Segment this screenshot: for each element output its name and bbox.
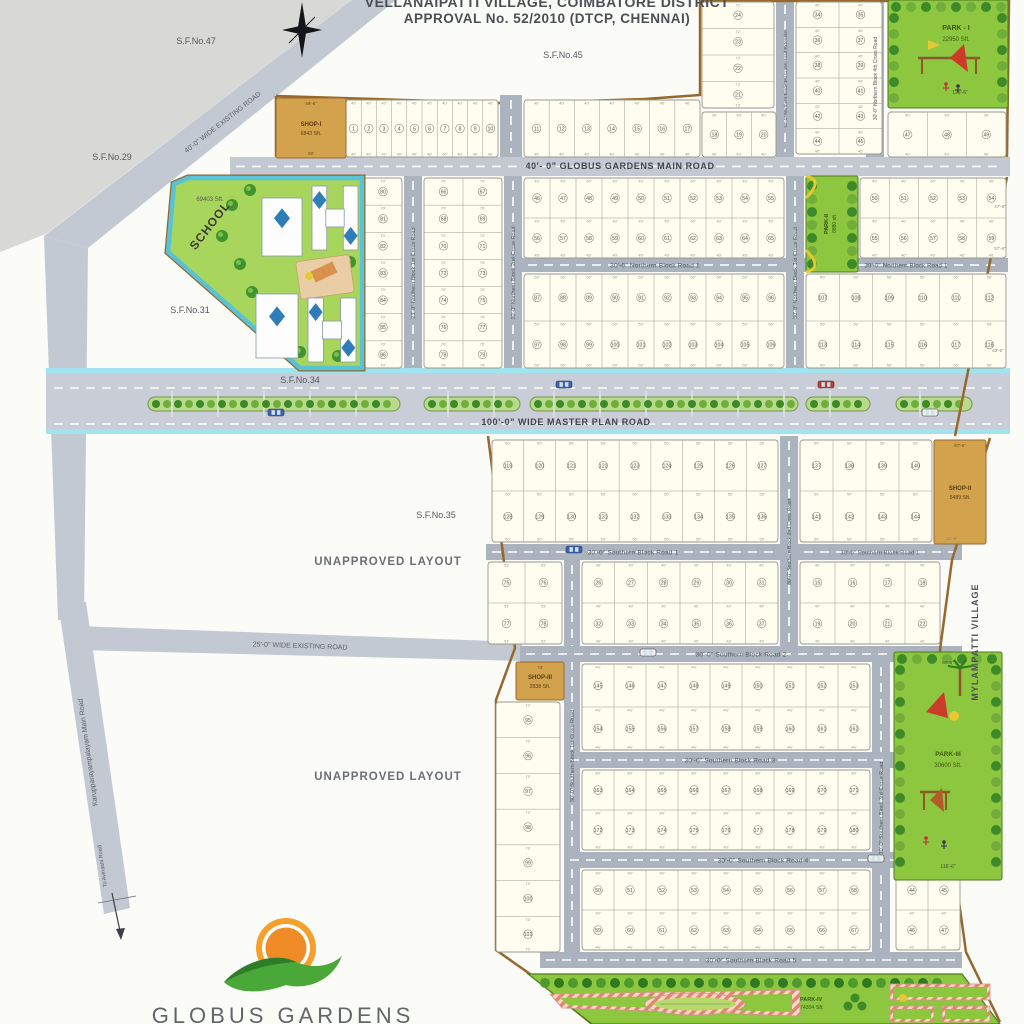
plot-dim: 40': [787, 911, 792, 916]
plot-dim: 40': [612, 179, 617, 184]
plot-number: 14: [609, 126, 615, 132]
plot-number: 21: [885, 621, 891, 627]
plot-dim: 40': [412, 101, 417, 106]
road-label-master-plan: 100'-0" WIDE MASTER PLAN ROAD: [481, 417, 650, 427]
plot-dim: 53': [541, 638, 546, 643]
plot-number: 133: [662, 514, 671, 520]
plot-number: 98: [560, 342, 566, 348]
plot-block: 8750'8850'8950'9050'9150'9250'9350'9450'…: [524, 274, 784, 368]
plot-dim: 50': [690, 362, 695, 367]
plot-number: 42: [815, 114, 821, 120]
plot-number: 144: [911, 514, 920, 520]
hedge: [722, 978, 732, 988]
plot-dim: 40': [815, 53, 820, 58]
plot-number: 75: [504, 580, 510, 586]
plot-number: 27: [628, 580, 634, 586]
road-label-northern-block-2nd-cross-road: 30'-0" Northern Block 2nd Cross Road: [511, 226, 517, 319]
shop-shop-ii: 87'-6"SHOP-II5489 Sft.: [934, 440, 986, 544]
plot-number: 137: [812, 463, 821, 469]
plot-dim: 40': [628, 638, 633, 643]
plot-dim: 40': [685, 101, 690, 106]
plot-number: 58: [586, 236, 592, 242]
road-label-northern-block-3rd-cross-road-extension: 30'-0" Northern Block 3rd Cross Road Ext…: [783, 29, 788, 128]
plot-dim: 40': [768, 252, 773, 257]
plot-number: 40: [815, 89, 821, 95]
plot-number: 65: [768, 236, 774, 242]
unapproved-layout-label: UNAPPROVED LAYOUT: [314, 771, 462, 783]
plot-dim: 40': [909, 911, 914, 916]
road-label-southern-block-1st-cross-road: 30'-0" Southern Block 1st Cross Road: [570, 710, 576, 802]
plot-dim: 40': [787, 944, 792, 949]
survey-label: S.F.No.47: [176, 36, 216, 46]
plot-block: 11950'12050'12150'12250'12350'12450'1255…: [492, 440, 778, 542]
plot-number: 80: [380, 189, 386, 195]
plot-dim: 40': [351, 151, 356, 156]
plot-dim: 50': [814, 536, 819, 541]
shop-name: SHOP-II: [949, 486, 972, 492]
plot-number: 149: [722, 683, 731, 689]
plot-number: 62: [691, 928, 697, 934]
plot-number: 145: [594, 683, 603, 689]
plot-dim: 40': [960, 252, 965, 257]
car: [868, 855, 884, 862]
plot-dim: 40': [984, 151, 989, 156]
school-building: [256, 294, 298, 358]
plot-number: 31: [759, 580, 765, 586]
plot-dim: 50': [853, 322, 858, 327]
plot-dim: 50': [760, 492, 765, 497]
plot-dim: 40': [723, 665, 728, 670]
plot-number: 50: [595, 888, 601, 894]
plot-dim: 40': [473, 101, 478, 106]
plot-dim: 40': [941, 944, 946, 949]
plot-dim: 40': [787, 811, 792, 816]
plot-dim: 73': [525, 845, 530, 850]
plot-number: 97: [525, 789, 531, 795]
tree: [895, 713, 905, 723]
plot-number: 88: [560, 295, 566, 301]
plot-dim: 50': [920, 275, 925, 280]
plot-dim: 40': [559, 101, 564, 106]
plot-dim: 70': [441, 233, 446, 238]
tree: [807, 233, 817, 243]
tree: [895, 857, 905, 867]
plot-dim: 40': [920, 563, 925, 568]
plot-dim: 40': [759, 563, 764, 568]
plot-number: 13: [584, 126, 590, 132]
plot-dim: 40': [819, 665, 824, 670]
tree: [957, 654, 967, 664]
plot-dim: 40': [723, 811, 728, 816]
plot-dim: 40': [381, 151, 386, 156]
tree: [847, 207, 857, 217]
plot-number: 166: [690, 788, 699, 794]
plot-dim: 40': [586, 219, 591, 224]
plot-dim: 50': [632, 492, 637, 497]
plot-dim: 40': [691, 771, 696, 776]
plot-dim: 40': [694, 638, 699, 643]
plot-dim: 50': [987, 362, 992, 367]
tree: [991, 681, 1001, 691]
plot-dim: 70': [441, 314, 446, 319]
plot-number: 97: [534, 342, 540, 348]
plot-dim: 40': [872, 179, 877, 184]
plot-number: 82: [380, 244, 386, 250]
plot-dim: 40': [664, 252, 669, 257]
plot-dim: 50': [814, 492, 819, 497]
plot-dim: 73': [525, 703, 530, 708]
plot-number: 50: [638, 196, 644, 202]
tree: [991, 809, 1001, 819]
park-name: PARK - I: [942, 25, 970, 32]
plot-number: 66: [441, 189, 447, 195]
plot-number: 161: [818, 726, 827, 732]
plot-dim: 40': [930, 252, 935, 257]
plot-dim: 70': [480, 206, 485, 211]
plot-block: 4440'4540'4640'40'4740'40': [896, 870, 960, 950]
plot-number: 51: [901, 196, 907, 202]
park-park-ii: PARK-II8880 sft: [806, 176, 858, 272]
road-label-northern-block-road-1-center: 30'-0" Northern Block Road 1: [610, 263, 700, 270]
plot-number: 162: [850, 726, 859, 732]
plot-dim: 40': [851, 944, 856, 949]
plot-dim: 50': [696, 441, 701, 446]
plot-dim: 40': [694, 563, 699, 568]
plot-dim: 40': [851, 665, 856, 670]
plot-number: 53: [716, 196, 722, 202]
plot-number: 96: [525, 753, 531, 759]
plot-dim: 40': [691, 944, 696, 949]
plot-dim: 70': [480, 260, 485, 265]
plot-number: 175: [690, 828, 699, 834]
plot-dim: 50': [638, 275, 643, 280]
plot-dim: 40': [858, 79, 863, 84]
plot-dim: 40': [755, 744, 760, 749]
plot-number: 163: [594, 788, 603, 794]
plot-dim: 40': [427, 151, 432, 156]
plot-number: 44: [815, 139, 821, 145]
plot-dim: 40': [635, 101, 640, 106]
plot-dim: 40': [595, 944, 600, 949]
plot-number: 11: [534, 126, 539, 132]
plot-dim: 40': [755, 811, 760, 816]
plot-dim: 40': [851, 871, 856, 876]
road-label-southern-block-road-2: 30'-0" Southern Block Road 2: [696, 652, 787, 659]
plot-number: 68: [441, 217, 447, 223]
hedge: [624, 978, 634, 988]
plot-dim: 50': [728, 536, 733, 541]
plot-number: 59: [612, 236, 618, 242]
plot-number: 78: [441, 352, 447, 358]
plot-number: 169: [786, 788, 795, 794]
plot-dim: 50': [760, 441, 765, 446]
park-park-iv: PARK-IV74304 Sft.: [528, 974, 1000, 1024]
plot-dim: 40': [685, 151, 690, 156]
plot-dim: 40': [664, 179, 669, 184]
plot-dim: 50': [612, 362, 617, 367]
plot-dim: 40': [584, 151, 589, 156]
plot-block: 5040'5140'5240'5340'5440'5540'5640'5740'…: [582, 870, 870, 950]
tree: [807, 220, 817, 230]
road-label-northern-block-3rd-cross-road: 30'-0" Northern Block 3rd Cross Road: [793, 227, 799, 319]
plot-dim: 40': [457, 101, 462, 106]
plot-number: 113: [819, 342, 827, 348]
road-label-southern-block-road-3: 30'-0" Southern Block Road 3: [685, 758, 776, 765]
hedge: [680, 978, 690, 988]
plot-dim: 50': [742, 322, 747, 327]
plot-number: 132: [631, 514, 640, 520]
plot-number: 121: [567, 463, 576, 469]
park-name: PARK-IV: [800, 997, 823, 1003]
plot-number: 114: [852, 342, 860, 348]
plot-number: 60: [627, 928, 633, 934]
tree: [895, 681, 905, 691]
plot-dim: 40': [742, 252, 747, 257]
plot-number: 81: [380, 217, 386, 223]
hedge: [834, 978, 844, 988]
plot-dim: 40': [984, 113, 989, 118]
plot-number: 1: [352, 126, 355, 132]
tree: [847, 246, 857, 256]
plot-number: 155: [626, 726, 635, 732]
road-label-southern-block-road-1-right: 30'-0" Southern Block Road 1: [841, 551, 920, 557]
plot-number: 61: [664, 236, 670, 242]
plot-dim: 40': [659, 844, 664, 849]
plot-dim: 40': [627, 708, 632, 713]
plot-number: 143: [878, 514, 887, 520]
plot-number: 16: [850, 580, 856, 586]
plot-dim: 40': [627, 665, 632, 670]
plot-number: 35: [693, 621, 699, 627]
plot-number: 56: [901, 236, 907, 242]
plot-dim: 50': [569, 492, 574, 497]
plot-number: 36: [815, 38, 821, 44]
plot-number: 72: [441, 271, 447, 277]
plot-number: 106: [767, 342, 776, 348]
plot-number: 7: [443, 126, 446, 132]
road-label-northern-block-1st-cross-road: 23'-0" Northern Block 1st Cross Road: [411, 227, 417, 318]
plot-number: 59: [595, 928, 601, 934]
plot-dim: 40': [659, 665, 664, 670]
plot-dim: 50': [664, 441, 669, 446]
plot-dim: 40': [920, 604, 925, 609]
plot-dim: 40': [366, 151, 371, 156]
plot-number: 156: [658, 726, 667, 732]
plot-number: 164: [626, 788, 635, 794]
plot-dim: 73': [525, 881, 530, 886]
plot-number: 60: [638, 236, 644, 242]
plot-dim: 40': [736, 113, 741, 118]
plot-number: 124: [662, 463, 671, 469]
hedge: [792, 978, 802, 988]
plot-dim: 40': [905, 151, 910, 156]
plot-dim: 50': [664, 536, 669, 541]
plot-dim: 40': [787, 844, 792, 849]
plot-number: 180: [850, 828, 859, 834]
tree: [997, 29, 1007, 39]
plot-number: 89: [586, 295, 592, 301]
plot-block: 6670'6770'6870'6970'7070'7170'7270'7370'…: [424, 178, 502, 368]
car: [922, 409, 938, 416]
plot-number: 147: [658, 683, 667, 689]
plot-number: 58: [959, 236, 965, 242]
plot-dim: 40': [712, 113, 717, 118]
plot-dim: 40': [819, 708, 824, 713]
plot-number: 32: [595, 621, 601, 627]
plot-dim: 40': [560, 252, 565, 257]
plot-number: 110: [919, 295, 927, 301]
plot-dim: 40': [690, 252, 695, 257]
plot-dim: 50': [537, 492, 542, 497]
plot-dim: 40': [944, 113, 949, 118]
plot-dim: 40': [559, 151, 564, 156]
plot-dim: 40': [635, 151, 640, 156]
plot-number: 66: [819, 928, 825, 934]
plot-number: 168: [754, 788, 763, 794]
plot-dim: 50': [534, 275, 539, 280]
plot-dim: 70': [380, 362, 385, 367]
plot-number: 77: [480, 325, 486, 331]
plot-number: 54: [723, 888, 729, 894]
plot-dim: 40': [787, 665, 792, 670]
tree: [991, 857, 1001, 867]
plot-dim: 40': [691, 844, 696, 849]
plot-dim: 50': [586, 362, 591, 367]
plot-number: 12: [559, 126, 565, 132]
plot-number: 93: [690, 295, 696, 301]
plot-dim: 40': [726, 638, 731, 643]
plot-dim: 40': [534, 151, 539, 156]
plot-dim: 40': [595, 911, 600, 916]
plot-dim: 73': [525, 810, 530, 815]
plot-number: 63: [716, 236, 722, 242]
plot-block: 8070'8170'8270'8370'8470'8570'8670'70': [364, 178, 402, 368]
plot-dim: 50': [632, 441, 637, 446]
plot-dim: 40': [736, 151, 741, 156]
plot-number: 78: [541, 621, 547, 627]
plot-dim: 40': [560, 219, 565, 224]
plot-number: 128: [504, 514, 513, 520]
tree: [991, 777, 1001, 787]
plot-number: 39: [858, 63, 864, 69]
tree: [895, 745, 905, 755]
plot-number: 99: [586, 342, 592, 348]
tree: [927, 654, 937, 664]
plot-number: 127: [758, 463, 767, 469]
plot-dim: 50': [664, 275, 669, 280]
plot-dim: 40': [488, 151, 493, 156]
globus-gardens-logo: GLOBUS GARDENS: [148, 902, 418, 1024]
hedge: [848, 978, 858, 988]
plot-block: 4740'40'4840'40'4940'40': [888, 112, 1006, 157]
plot-number: 52: [930, 196, 936, 202]
plot-dim: 50': [716, 275, 721, 280]
plot-dim: 50': [601, 492, 606, 497]
plot-number: 152: [818, 683, 827, 689]
plot-dim: 53': [504, 638, 509, 643]
plot-number: 135: [726, 514, 735, 520]
plot-block: 1140'40'1240'40'1340'40'1440'40'1540'40'…: [524, 100, 700, 157]
plot-dim: 50': [814, 441, 819, 446]
plot-dim: 40': [920, 638, 925, 643]
plot-dim: 50': [847, 536, 852, 541]
plot-number: 59: [989, 236, 995, 242]
plot-dim: 40': [628, 563, 633, 568]
plot-dim: 40': [815, 79, 820, 84]
plan-approval-line: APPROVAL No. 52/2010 (DTCP, CHENNAI): [70, 11, 1024, 26]
tree: [991, 761, 1001, 771]
plot-dim: 50': [664, 362, 669, 367]
plot-number: 20: [850, 621, 856, 627]
plot-block: 140'40'240'40'340'40'440'40'540'40'640'4…: [346, 100, 498, 157]
park-name: PARK-III: [935, 751, 961, 758]
plot-dim: 50': [696, 492, 701, 497]
plot-dim: 40': [759, 638, 764, 643]
plot-dim: 50': [632, 536, 637, 541]
road-label-northern-block-4th-cross-road: 30'-0" Northern Block 4th Cross Road: [873, 37, 879, 121]
plot-number: 83: [380, 271, 386, 277]
plot-dim: 53': [541, 604, 546, 609]
plot-number: 64: [755, 928, 761, 934]
plot-dim: 73': [525, 946, 530, 951]
plot-number: 30: [726, 580, 732, 586]
plot-dim: 40': [595, 744, 600, 749]
plot-dim: 70': [441, 179, 446, 184]
plot-dim: 70': [480, 287, 485, 292]
plot-dim: 50': [696, 536, 701, 541]
plot-dim: 70': [380, 206, 385, 211]
plot-dim: 70': [441, 287, 446, 292]
plot-number: 116: [919, 342, 927, 348]
plot-dim: 40': [819, 844, 824, 849]
plot-dim: 40': [586, 179, 591, 184]
plot-number: 123: [631, 463, 640, 469]
plot-dim: 40': [661, 638, 666, 643]
tree: [895, 793, 905, 803]
tree: [847, 259, 857, 269]
plot-number: 46: [534, 196, 540, 202]
hedge: [582, 978, 592, 988]
tree: [991, 745, 1001, 755]
plot-dim: 40': [412, 151, 417, 156]
layout-map: 140'40'240'40'340'40'440'40'540'40'640'4…: [0, 0, 1024, 1024]
plot-number: 154: [594, 726, 603, 732]
plot-dim: 40': [612, 252, 617, 257]
road-label-southern-block-road-4: 30'-0" Southern Block Road 4: [718, 858, 809, 865]
plot-dim: 40': [989, 219, 994, 224]
plot-number: 52: [659, 888, 665, 894]
plot-dim: 40': [819, 944, 824, 949]
plot-dim: 40': [659, 744, 664, 749]
plot-dim: 40': [819, 871, 824, 876]
plot-number: 55: [872, 236, 878, 242]
edge-dim: 62'-6": [992, 348, 1004, 353]
plot-number: 148: [690, 683, 699, 689]
plot-dim: 70': [480, 362, 485, 367]
road-label-northern-block-road-1-right: 30'-0" Northern Block Road 1: [864, 264, 948, 270]
plot-number: 17: [685, 126, 691, 132]
plot-block: 14540'14640'14740'14840'14940'15040'1514…: [582, 664, 870, 750]
plot-number: 70: [441, 244, 447, 250]
plot-dim: 40': [885, 563, 890, 568]
plot-dim: 50': [953, 275, 958, 280]
plot-dim: 70': [441, 341, 446, 346]
plot-number: 56: [787, 888, 793, 894]
plot-dim: 50': [537, 441, 542, 446]
plot-number: 23: [735, 40, 741, 46]
edge-dim: 47'-6": [994, 204, 1006, 209]
plot-dim: 40': [638, 179, 643, 184]
